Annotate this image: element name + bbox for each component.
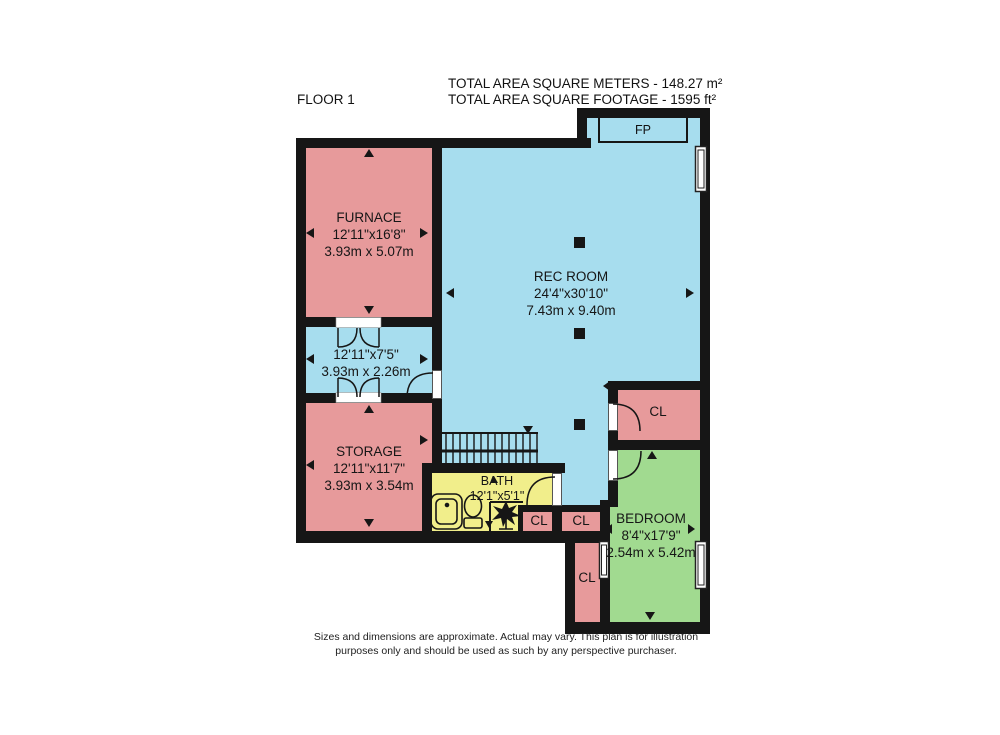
disclaimer-line1: Sizes and dimensions are approximate. Ac…: [301, 631, 711, 645]
total-area-meters: TOTAL AREA SQUARE METERS - 148.27 m²: [448, 76, 722, 92]
storage-name: STORAGE: [324, 443, 413, 460]
bedroom-name: BEDROOM: [606, 510, 695, 527]
fireplace: FP: [598, 116, 688, 143]
furnace-imperial: 12'11"x16'8": [324, 226, 413, 243]
closet-2-label: CL: [572, 513, 589, 528]
bedroom-label: BEDROOM 8'4"x17'9" 2.54m x 5.42m: [606, 510, 695, 561]
door-icon: [407, 371, 442, 399]
storage-imperial: 12'11"x11'7": [324, 460, 413, 477]
storage-metric: 3.93m x 3.54m: [324, 477, 413, 494]
column-icon: [574, 237, 585, 430]
closet-vertical-label: CL: [578, 570, 595, 585]
furnace-label: FURNACE 12'11"x16'8" 3.93m x 5.07m: [324, 209, 413, 260]
door-icon: [527, 474, 562, 506]
floor-label: FLOOR 1: [297, 92, 355, 107]
hall-metric: 3.93m x 2.26m: [321, 363, 410, 380]
storage-label: STORAGE 12'11"x11'7" 3.93m x 3.54m: [324, 443, 413, 494]
bath-name: BATH: [470, 474, 525, 489]
bath-imperial: 12'1"x5'1": [470, 489, 525, 504]
floor-plan: FLOOR 1 TOTAL AREA SQUARE METERS - 148.2…: [0, 0, 1000, 735]
furnace-metric: 3.93m x 5.07m: [324, 243, 413, 260]
rec-room-imperial: 24'4"x30'10": [526, 285, 615, 302]
bedroom-imperial: 8'4"x17'9": [606, 527, 695, 544]
hall-imperial: 12'11"x7'5": [321, 346, 410, 363]
disclaimer: Sizes and dimensions are approximate. Ac…: [301, 631, 711, 658]
bath-label: BATH 12'1"x5'1": [470, 474, 525, 504]
closet-top-label: CL: [649, 404, 666, 419]
rec-room-name: REC ROOM: [526, 268, 615, 285]
door-icon: [609, 451, 642, 481]
window-icon: [696, 147, 707, 192]
rec-room-label: REC ROOM 24'4"x30'10" 7.43m x 9.40m: [526, 268, 615, 319]
total-area: TOTAL AREA SQUARE METERS - 148.27 m² TOT…: [448, 76, 722, 108]
bedroom-metric: 2.54m x 5.42m: [606, 544, 695, 561]
sink-icon: [431, 494, 462, 529]
door-icon: [609, 404, 641, 432]
closet-1-label: CL: [530, 513, 547, 528]
floorplan-symbols: [0, 0, 1000, 735]
total-area-footage: TOTAL AREA SQUARE FOOTAGE - 1595 ft²: [448, 92, 722, 108]
double-door-icon: [336, 378, 381, 403]
window-icon: [696, 542, 707, 589]
disclaimer-line2: purposes only and should be used as such…: [301, 645, 711, 659]
plant-icon: [492, 501, 521, 529]
fireplace-label: FP: [635, 123, 651, 137]
double-door-icon: [336, 318, 381, 348]
furnace-name: FURNACE: [324, 209, 413, 226]
hall-label: 12'11"x7'5" 3.93m x 2.26m: [321, 346, 410, 380]
stairs-icon: [440, 433, 538, 467]
rec-room-metric: 7.43m x 9.40m: [526, 302, 615, 319]
